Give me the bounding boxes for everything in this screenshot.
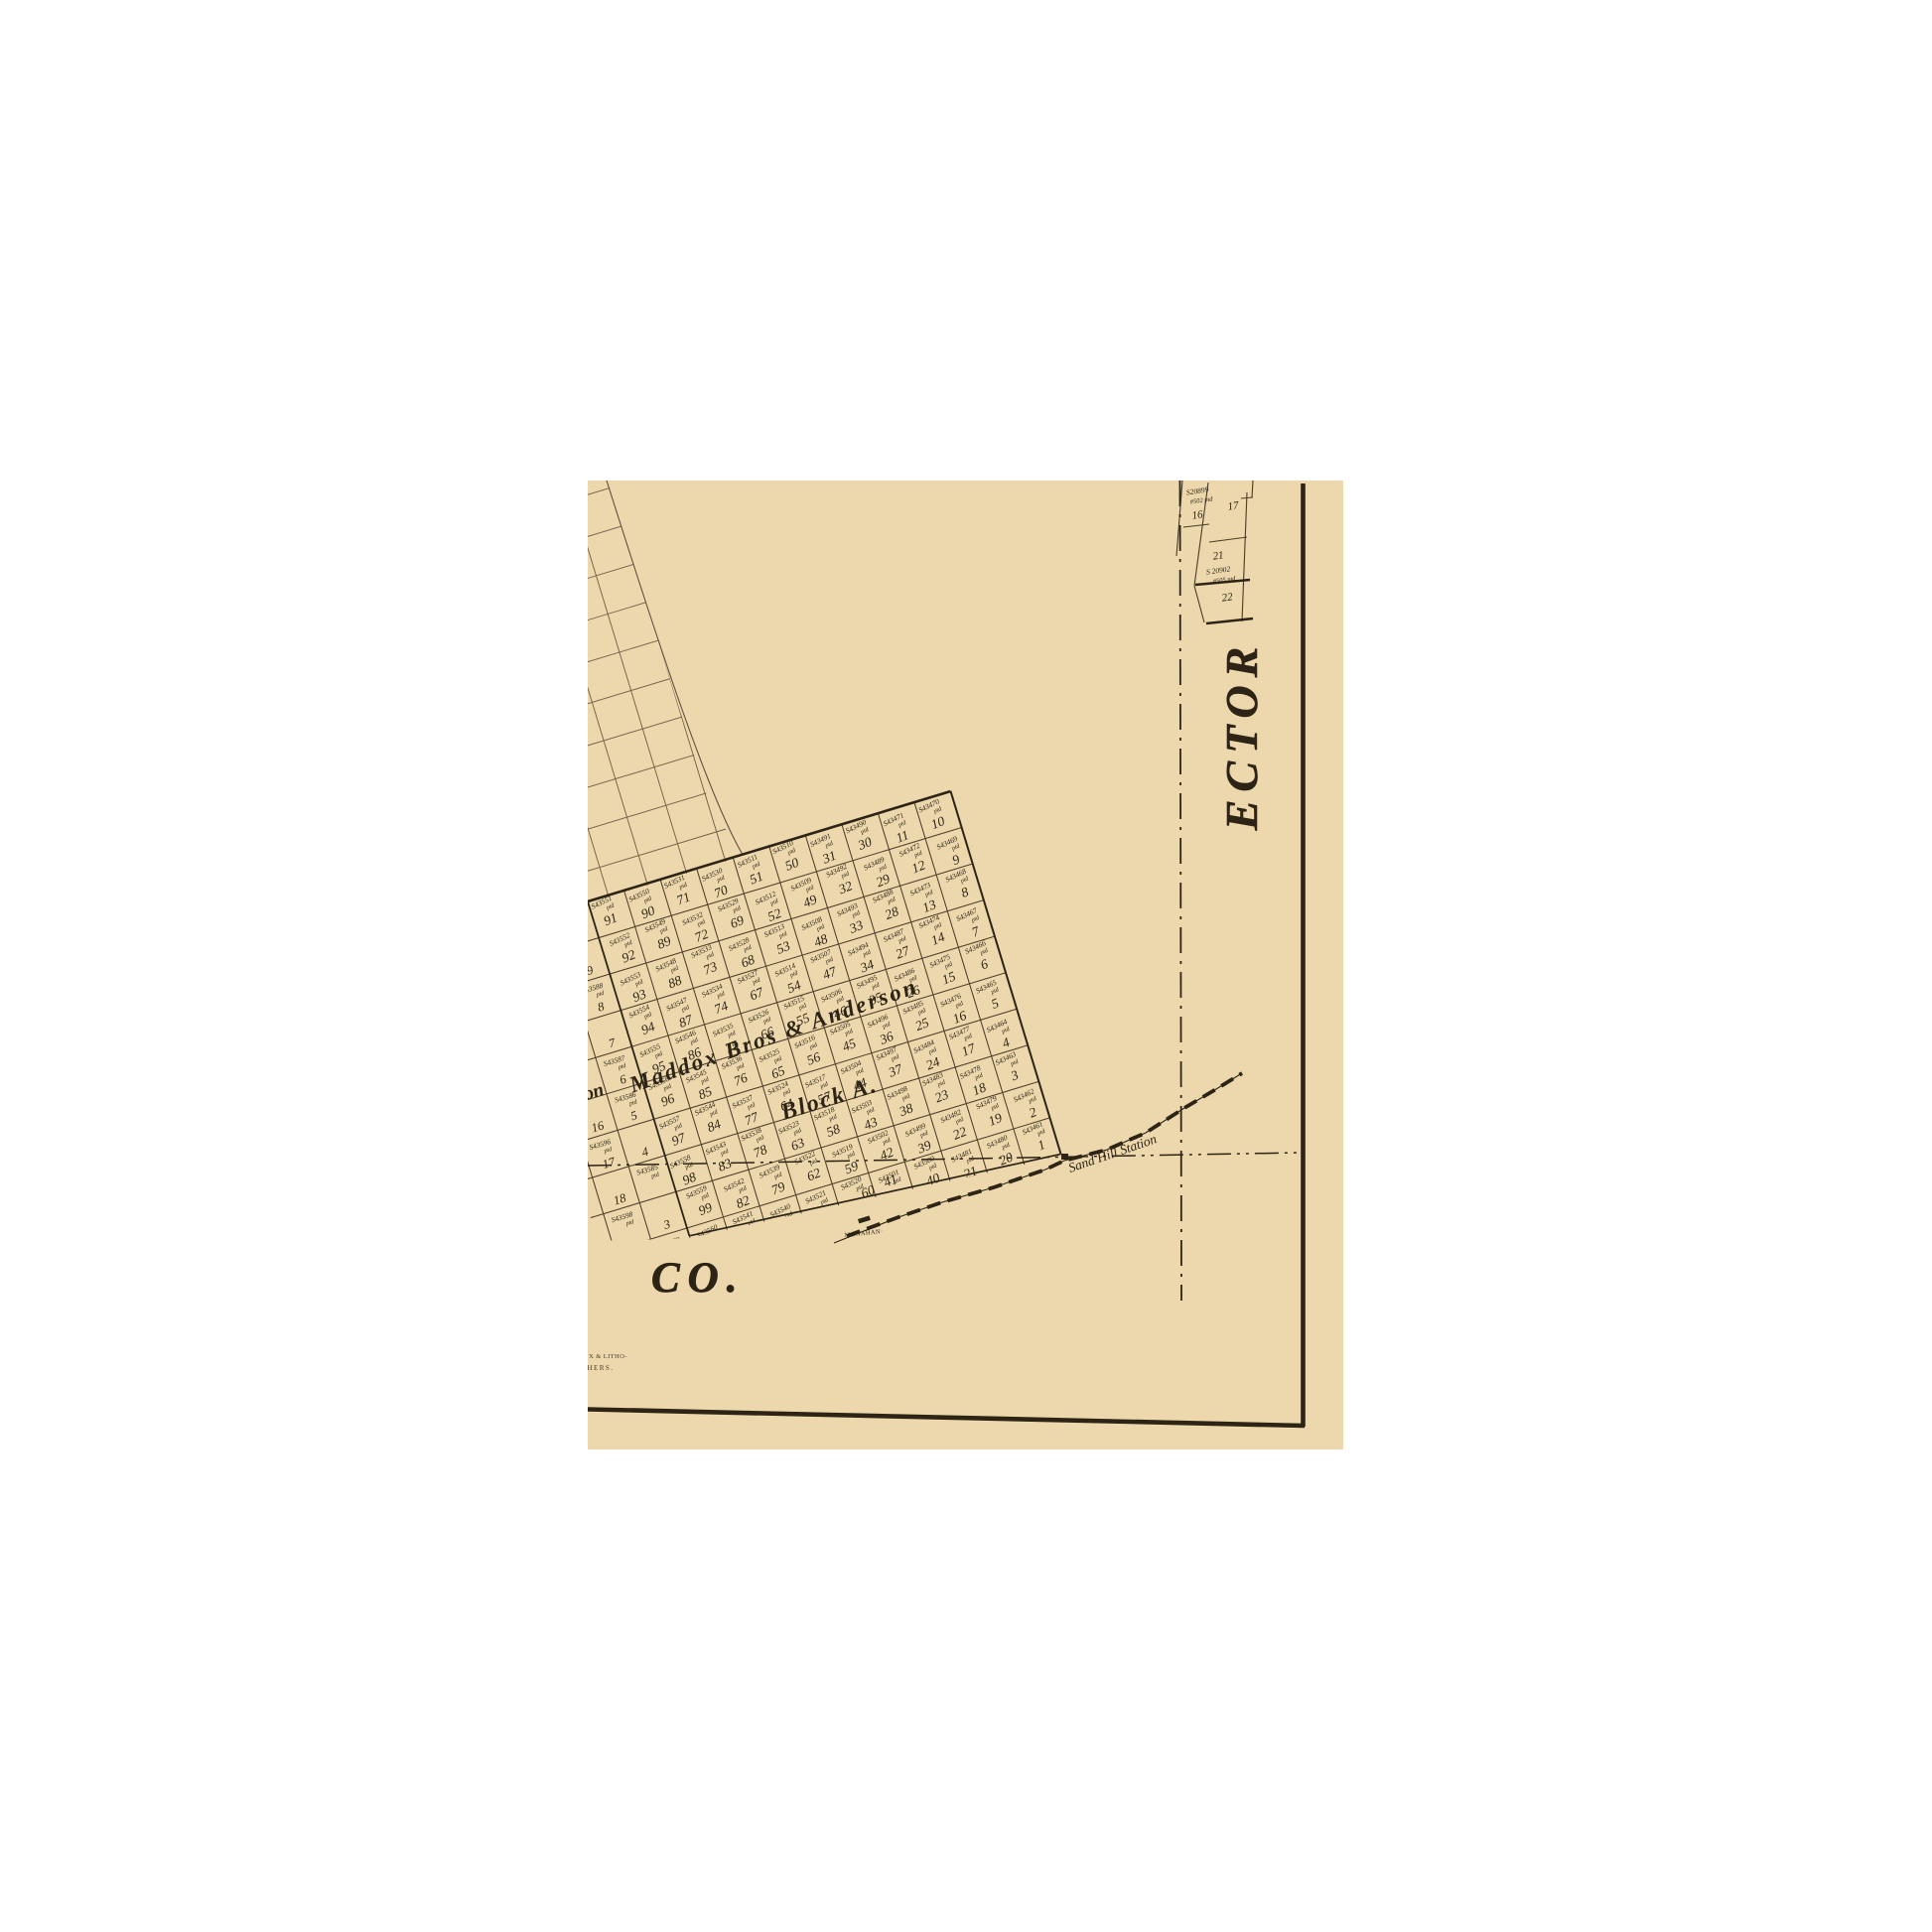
svg-text:ECTOR: ECTOR (1216, 639, 1267, 832)
svg-text:CO.: CO. (651, 1255, 745, 1302)
svg-text:YX & LITHO-: YX & LITHO- (584, 1353, 627, 1360)
svg-text:16: 16 (1191, 508, 1204, 521)
svg-text:21: 21 (1212, 549, 1225, 562)
svg-text:17: 17 (1227, 499, 1240, 512)
svg-text:22: 22 (1221, 591, 1234, 604)
